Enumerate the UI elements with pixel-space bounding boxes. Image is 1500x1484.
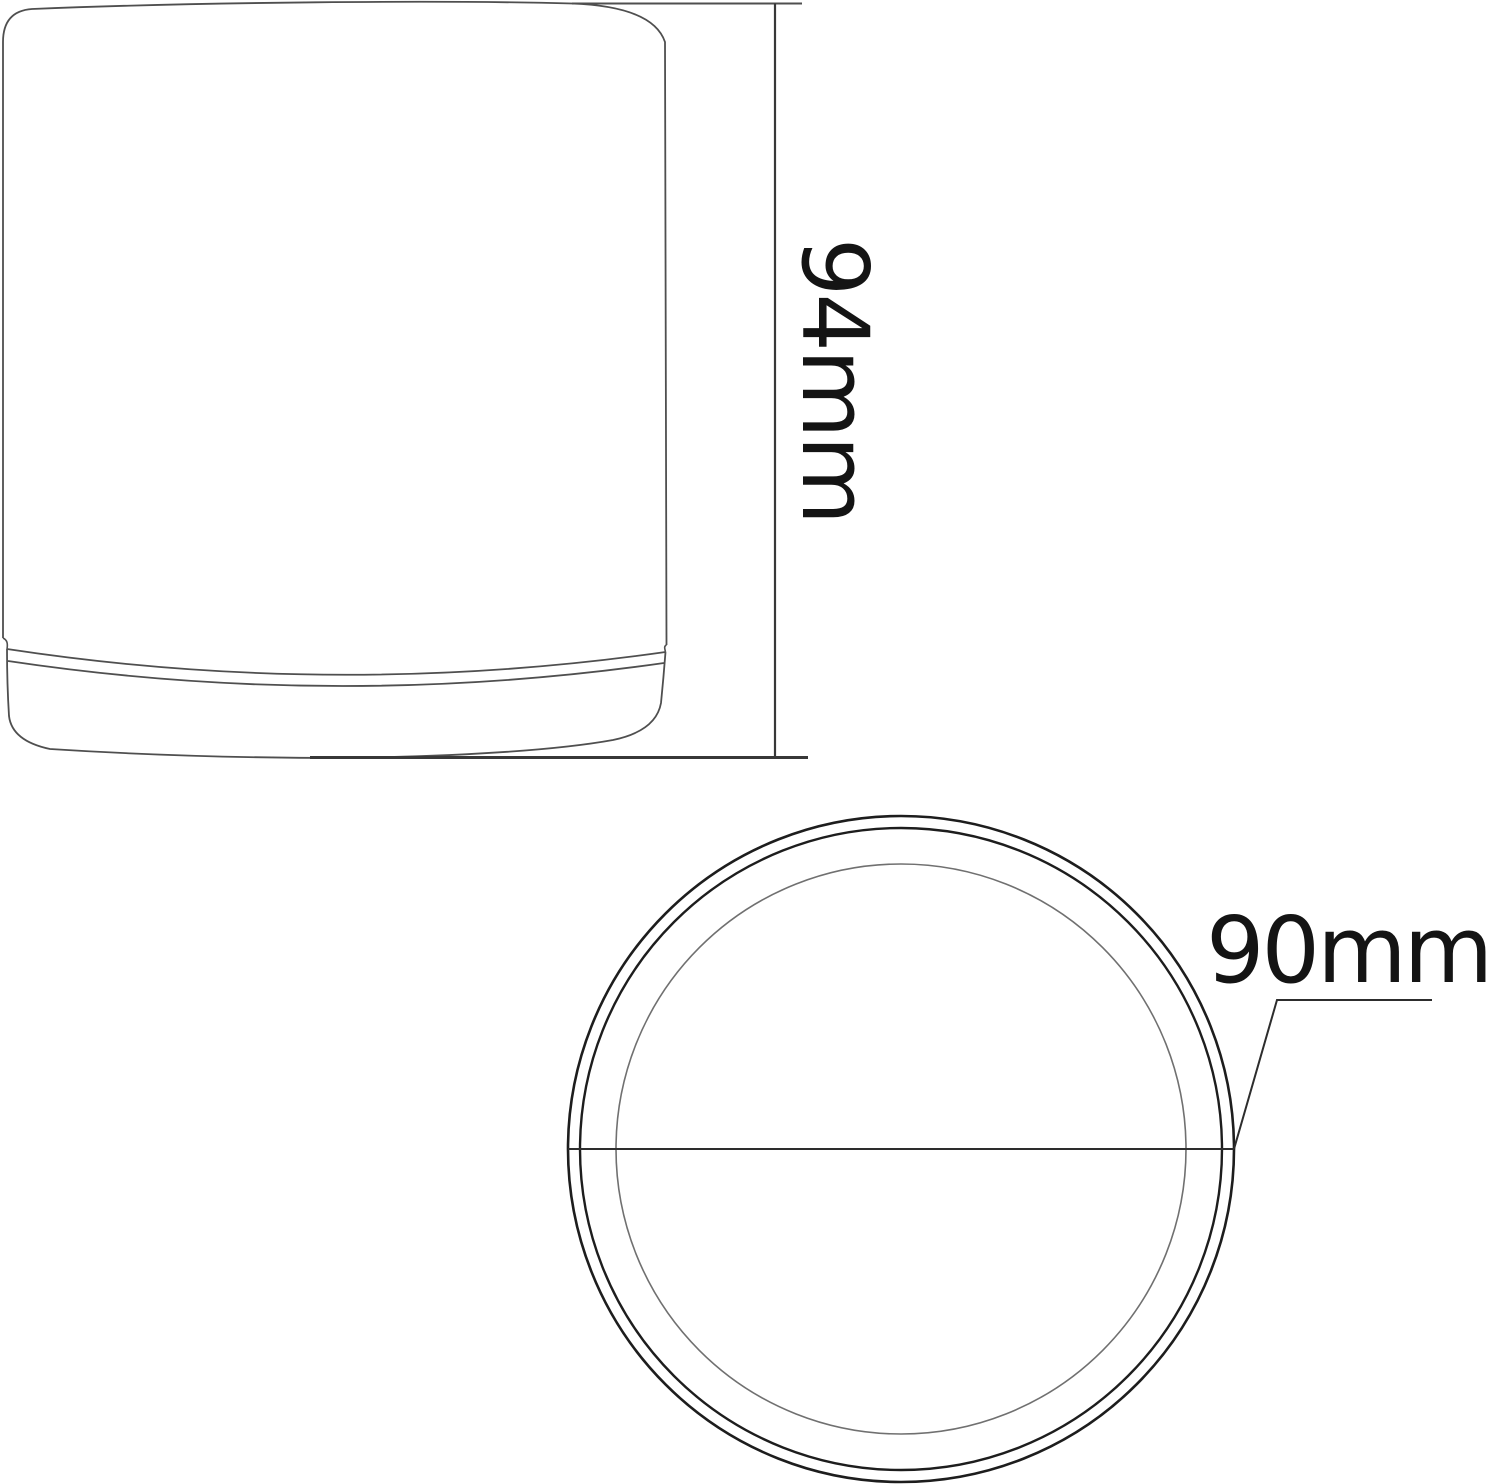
side-view xyxy=(3,2,667,758)
side-view-right-step-line xyxy=(665,645,667,652)
base-ring-upper-arc xyxy=(7,649,666,675)
drawing-linework xyxy=(0,0,1500,1484)
side-view-body-outline xyxy=(3,2,667,645)
side-view-left-step-line xyxy=(3,638,7,649)
base-band-outline xyxy=(7,649,666,758)
technical-drawing-page: 94mm 90mm xyxy=(0,0,1500,1484)
height-dimension-label: 94mm xyxy=(788,238,880,522)
diameter-dimension-label: 90mm xyxy=(1206,905,1490,997)
diameter-leader-line xyxy=(1234,1000,1432,1149)
height-dimension xyxy=(310,4,808,758)
